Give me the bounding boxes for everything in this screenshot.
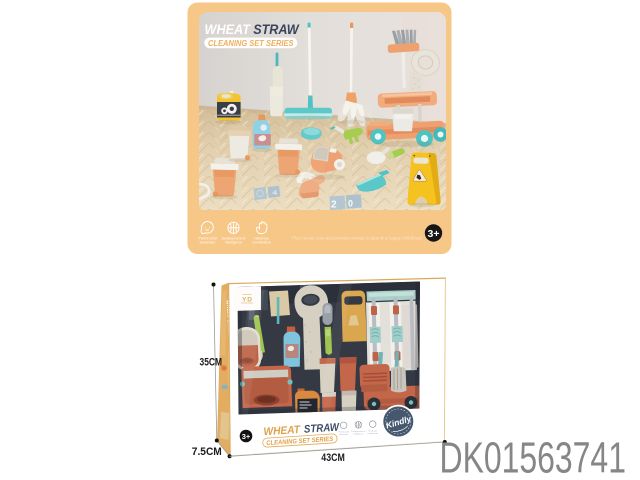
svg-text:YD: YD — [242, 297, 252, 304]
svg-text:intelligence: intelligence — [225, 241, 242, 245]
svg-text:7.5CM: 7.5CM — [192, 446, 222, 458]
svg-text:interaction: interaction — [200, 241, 216, 245]
svg-text:coordination: coordination — [367, 432, 378, 435]
svg-text:DK01563741: DK01563741 — [440, 434, 626, 480]
svg-text:STRAW: STRAW — [253, 22, 300, 37]
svg-text:WHEAT: WHEAT — [205, 22, 252, 37]
svg-text:interaction: interaction — [339, 433, 348, 436]
svg-text:coordination: coordination — [252, 241, 271, 245]
svg-text:2: 2 — [331, 200, 337, 211]
svg-text:CLEANING SET SERIES: CLEANING SET SERIES — [208, 38, 294, 48]
svg-text:3+: 3+ — [242, 432, 251, 441]
svg-text:Play house toys accessories s: Play house toys accessories sweep to spe… — [292, 236, 422, 241]
svg-text:35CM: 35CM — [200, 356, 223, 368]
svg-text:STRAW: STRAW — [304, 421, 341, 435]
svg-text:43CM: 43CM — [321, 452, 345, 464]
svg-text:intelligence: intelligence — [353, 433, 364, 436]
svg-text:0: 0 — [348, 199, 353, 209]
svg-text:3+: 3+ — [428, 228, 440, 240]
